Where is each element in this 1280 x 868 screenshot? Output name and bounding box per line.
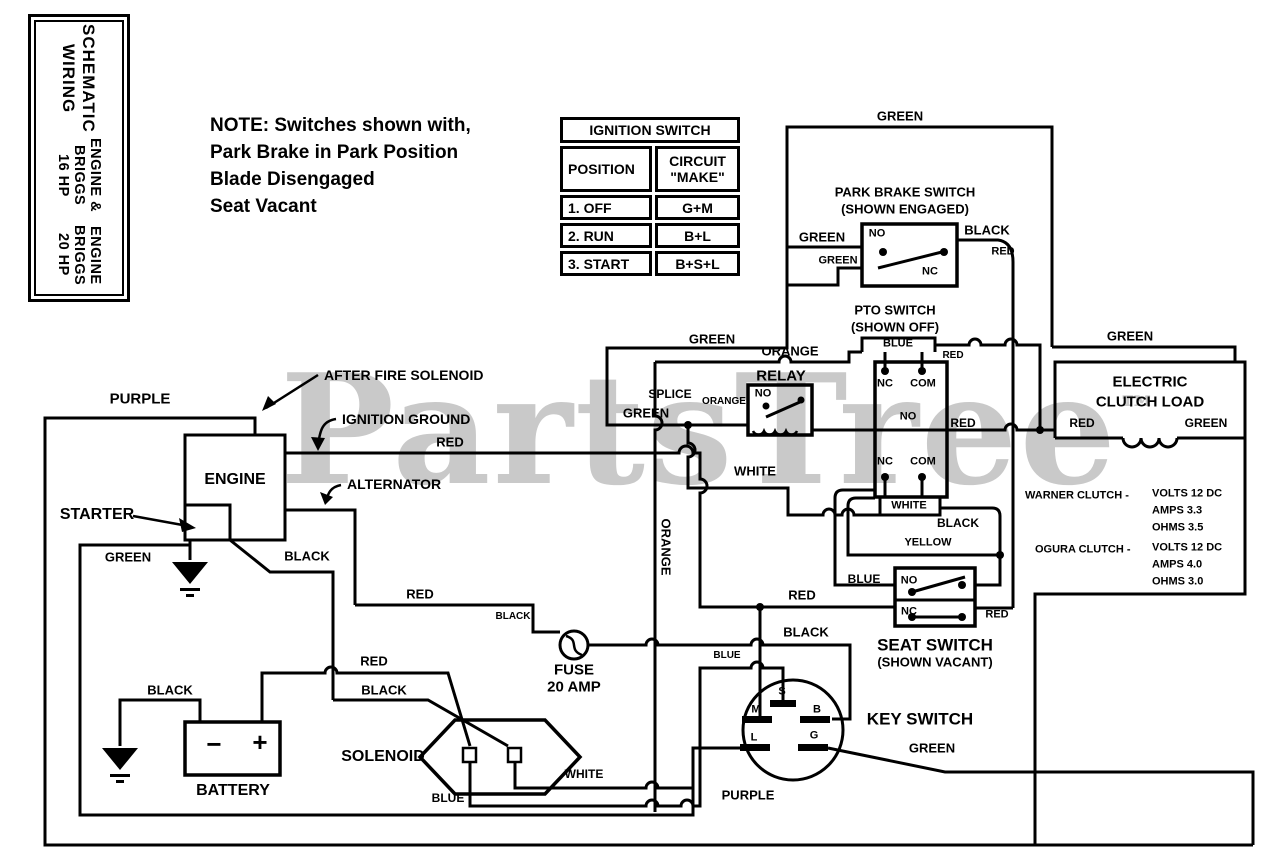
component-label-ogura-volts: VOLTS 12 DC <box>1152 543 1222 554</box>
terminal-label-pto-bottom-nc: NC <box>877 457 893 468</box>
component-label-clutch-load: CLUTCH LOAD <box>1096 395 1204 410</box>
component-label-fuse: FUSE <box>554 663 594 678</box>
component-label-splice: SPLICE <box>648 388 691 400</box>
component-label-warner-ohms: OHMS 3.5 <box>1152 523 1203 534</box>
wire-label-blue: BLUE <box>713 651 740 661</box>
wire-label-red: RED <box>991 247 1014 258</box>
terminal-label-key-terminal-l: L <box>751 733 758 744</box>
wire-label-white: WHITE <box>891 501 926 512</box>
component-label-solenoid: SOLENOID <box>341 749 425 765</box>
component-label-shown-engaged: (SHOWN ENGAGED) <box>841 203 969 216</box>
component-label-after-fire-solenoid: AFTER FIRE SOLENOID <box>324 368 483 382</box>
wire-label-green: GREEN <box>799 231 845 244</box>
wiring-schematic-page: PartsTree™ <box>0 0 1280 868</box>
terminal-label-battery-minus: − <box>206 731 221 757</box>
title-box: WIRING SCHEMATIC 16 HP BRIGGS ENGINE & 2… <box>28 14 130 302</box>
ignition-row-off-circuit: G+M <box>655 195 740 220</box>
component-label-electric: ELECTRIC <box>1113 375 1188 390</box>
wire-label-black: BLACK <box>496 612 531 622</box>
ignition-table-col-circuit: CIRCUIT "MAKE" <box>655 146 740 192</box>
terminal-label-park-brake-no: NO <box>869 229 886 240</box>
component-label-relay: RELAY <box>756 369 805 384</box>
wire-label-purple: PURPLE <box>722 789 775 802</box>
note-line-1: NOTE: Switches shown with, <box>210 112 471 139</box>
component-label-warner-volts: VOLTS 12 DC <box>1152 489 1222 500</box>
wire-label-blue: BLUE <box>848 573 881 585</box>
wire-label-black: BLACK <box>783 626 829 639</box>
wire-label-purple: PURPLE <box>110 392 171 407</box>
wire-label-orange: ORANGE <box>660 518 673 575</box>
wire-label-blue: BLUE <box>432 792 465 804</box>
wire-label-green: GREEN <box>1107 330 1153 343</box>
wire-label-yellow: YELLOW <box>904 538 951 549</box>
terminal-label-key-terminal-b: B <box>813 705 821 716</box>
terminal-label-key-terminal-g: G <box>810 731 819 742</box>
wire-label-orange: ORANGE <box>702 397 746 407</box>
terminal-label-relay-no: NO <box>755 389 772 400</box>
note-text: NOTE: Switches shown with, Park Brake in… <box>210 112 471 220</box>
component-label-20-amp: 20 AMP <box>547 680 601 695</box>
component-label-engine: ENGINE <box>204 472 265 488</box>
terminal-label-pto-bottom-com: COM <box>910 457 936 468</box>
ignition-row-start-position: 3. START <box>560 251 652 276</box>
component-label-warner-clutch-label: WARNER CLUTCH - <box>1025 491 1129 502</box>
terminal-label-key-terminal-m: M <box>751 705 760 716</box>
terminal-label-seat-nc: NC <box>901 607 917 618</box>
wire-label-black: BLACK <box>361 684 407 697</box>
wire-label-red: RED <box>406 588 433 601</box>
component-label-shown-off: (SHOWN OFF) <box>851 321 939 334</box>
note-line-2: Park Brake in Park Position <box>210 139 471 166</box>
terminal-label-park-brake-nc: NC <box>922 267 938 278</box>
title-line-2: 16 HP BRIGGS ENGINE & <box>55 135 103 216</box>
ignition-table-col-position: POSITION <box>560 146 652 192</box>
ignition-row-run-circuit: B+L <box>655 223 740 248</box>
component-label-ogura-amps: AMPS 4.0 <box>1152 560 1202 571</box>
ignition-row-run-position: 2. RUN <box>560 223 652 248</box>
ignition-switch-table: IGNITION SWITCH POSITION CIRCUIT "MAKE" … <box>560 117 740 276</box>
title-line-3: 20 HP BRIGGS ENGINE <box>55 218 103 292</box>
component-label-key-switch: KEY SWITCH <box>867 711 973 728</box>
component-label-ogura-clutch-label: OGURA CLUTCH - <box>1035 545 1131 556</box>
wire-label-green: GREEN <box>105 551 151 564</box>
component-label-park-brake-switch: PARK BRAKE SWITCH <box>835 186 976 199</box>
note-line-4: Seat Vacant <box>210 193 471 220</box>
terminal-label-pto-no: NO <box>900 412 917 423</box>
ignition-row-start-circuit: B+S+L <box>655 251 740 276</box>
component-label-starter: STARTER <box>60 507 134 523</box>
wire-label-black: BLACK <box>937 517 979 529</box>
wire-label-red: RED <box>950 417 975 429</box>
component-label-warner-amps: AMPS 3.3 <box>1152 506 1202 517</box>
ignition-table-title: IGNITION SWITCH <box>560 117 740 143</box>
terminal-label-battery-plus: + <box>252 729 267 755</box>
wire-label-black: BLACK <box>964 224 1010 237</box>
wire-label-blue: BLUE <box>883 339 913 350</box>
component-label-pto-switch: PTO SWITCH <box>854 304 935 317</box>
component-label-seat-switch: SEAT SWITCH <box>877 637 993 654</box>
terminal-label-key-terminal-s: S <box>778 687 785 698</box>
wire-label-black: BLACK <box>147 684 193 697</box>
terminal-label-seat-no: NO <box>901 576 918 587</box>
ignition-row-off-position: 1. OFF <box>560 195 652 220</box>
wire-label-red: RED <box>788 589 815 602</box>
wire-label-green: GREEN <box>1185 417 1228 429</box>
wire-label-green: GREEN <box>909 742 955 755</box>
note-line-3: Blade Disengaged <box>210 166 471 193</box>
wire-label-red: RED <box>942 351 963 361</box>
title-line-1: WIRING SCHEMATIC <box>58 24 98 133</box>
terminal-label-pto-top-com: COM <box>910 379 936 390</box>
component-label-alternator: ALTERNATOR <box>347 477 441 491</box>
wire-label-red: RED <box>1069 417 1094 429</box>
component-label-ignition-ground: IGNITION GROUND <box>342 412 470 426</box>
component-label-shown-vacant: (SHOWN VACANT) <box>877 656 992 669</box>
wire-label-green: GREEN <box>623 407 669 420</box>
wire-label-orange: ORANGE <box>761 345 818 358</box>
title-box-inner: WIRING SCHEMATIC 16 HP BRIGGS ENGINE & 2… <box>34 20 124 296</box>
terminal-label-pto-top-nc: NC <box>877 379 893 390</box>
component-label-battery: BATTERY <box>196 783 270 799</box>
wire-label-white: WHITE <box>565 768 604 780</box>
wire-label-black: BLACK <box>284 550 330 563</box>
wire-label-green: GREEN <box>877 110 923 123</box>
wire-label-red: RED <box>436 436 463 449</box>
wire-label-red: RED <box>985 610 1008 621</box>
wire-label-red: RED <box>360 655 387 668</box>
wire-label-green: GREEN <box>818 256 857 267</box>
wire-label-green: GREEN <box>689 333 735 346</box>
component-label-ogura-ohms: OHMS 3.0 <box>1152 577 1203 588</box>
wire-label-white: WHITE <box>734 465 776 478</box>
